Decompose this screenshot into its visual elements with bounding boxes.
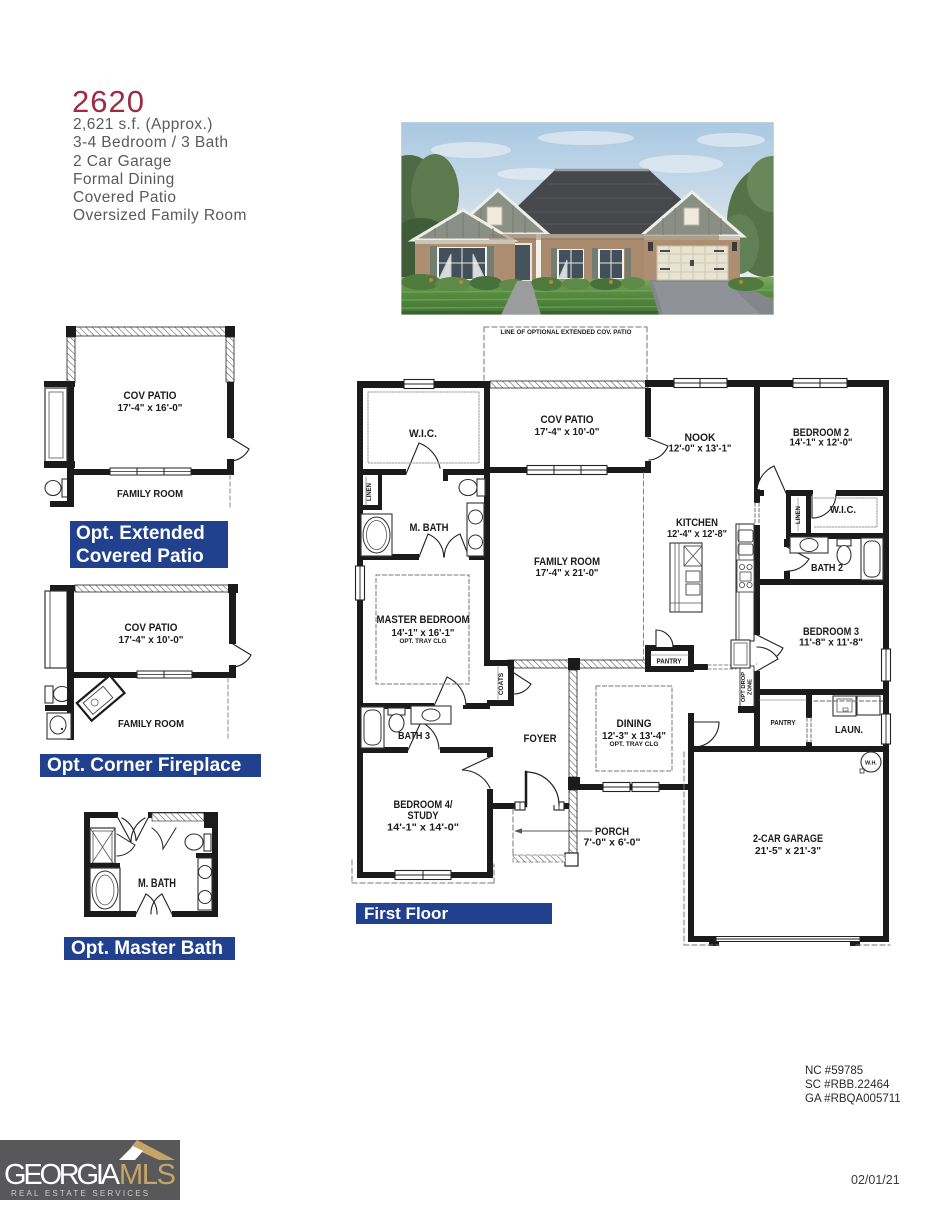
svg-text:21'-5" x 21'-3": 21'-5" x 21'-3" (755, 845, 821, 857)
svg-text:PANTRY: PANTRY (771, 718, 796, 727)
svg-text:14'-1" x 12'-0": 14'-1" x 12'-0" (790, 437, 853, 449)
svg-text:2-CAR GARAGE: 2-CAR GARAGE (753, 833, 823, 845)
svg-text:W.H.: W.H. (865, 761, 877, 767)
svg-text:W.I.C.: W.I.C. (830, 505, 856, 516)
svg-text:OPT DROP: OPT DROP (741, 672, 747, 702)
svg-text:12'-4" x 12'-8": 12'-4" x 12'-8" (667, 528, 727, 540)
svg-text:LINEN: LINEN (367, 483, 373, 501)
svg-text:12'-0" x 13'-1": 12'-0" x 13'-1" (669, 443, 732, 455)
svg-text:7'-0" x 6'-0": 7'-0" x 6'-0" (584, 837, 641, 849)
svg-text:STUDY: STUDY (408, 810, 440, 822)
svg-text:ZONE: ZONE (748, 679, 754, 695)
svg-text:17'-4" x 10'-0": 17'-4" x 10'-0" (535, 426, 600, 438)
svg-text:M. BATH: M. BATH (138, 878, 176, 890)
svg-text:COV PATIO: COV PATIO (124, 390, 177, 402)
svg-text:COATS: COATS (498, 672, 505, 695)
svg-text:DINING: DINING (617, 718, 652, 730)
svg-text:OPT. TRAY CLG: OPT. TRAY CLG (610, 741, 659, 748)
svg-text:14'-1" x 14'-0": 14'-1" x 14'-0" (387, 822, 459, 834)
svg-text:LAUN.: LAUN. (835, 724, 863, 736)
svg-text:MASTER BEDROOM: MASTER BEDROOM (377, 614, 470, 626)
svg-text:17'-4" x 10'-0": 17'-4" x 10'-0" (119, 634, 184, 646)
svg-text:M. BATH: M. BATH (410, 522, 449, 534)
svg-text:LINE OF OPTIONAL EXTENDED COV.: LINE OF OPTIONAL EXTENDED COV. PATIO (501, 329, 632, 336)
svg-text:MLS: MLS (119, 1159, 176, 1191)
svg-text:FAMILY ROOM: FAMILY ROOM (118, 718, 184, 730)
svg-text:BATH 2: BATH 2 (811, 562, 843, 574)
svg-text:FAMILY ROOM: FAMILY ROOM (117, 488, 183, 500)
svg-text:OPT. TRAY CLG: OPT. TRAY CLG (400, 638, 447, 645)
svg-text:11'-8" x 11'-8": 11'-8" x 11'-8" (799, 637, 863, 649)
svg-text:LINEN: LINEN (796, 506, 802, 524)
svg-text:BATH 3: BATH 3 (398, 730, 430, 742)
svg-text:GEORGIA: GEORGIA (4, 1159, 121, 1191)
svg-text:17'-4" x 21'-0": 17'-4" x 21'-0" (536, 567, 599, 579)
svg-text:W.I.C.: W.I.C. (409, 428, 437, 440)
svg-text:COV PATIO: COV PATIO (125, 622, 178, 634)
svg-text:REAL ESTATE SERVICES: REAL ESTATE SERVICES (11, 1189, 150, 1198)
svg-text:FOYER: FOYER (524, 733, 557, 745)
svg-text:17'-4" x 16'-0": 17'-4" x 16'-0" (118, 402, 183, 414)
svg-text:COV PATIO: COV PATIO (541, 414, 594, 426)
svg-text:PANTRY: PANTRY (657, 659, 682, 666)
